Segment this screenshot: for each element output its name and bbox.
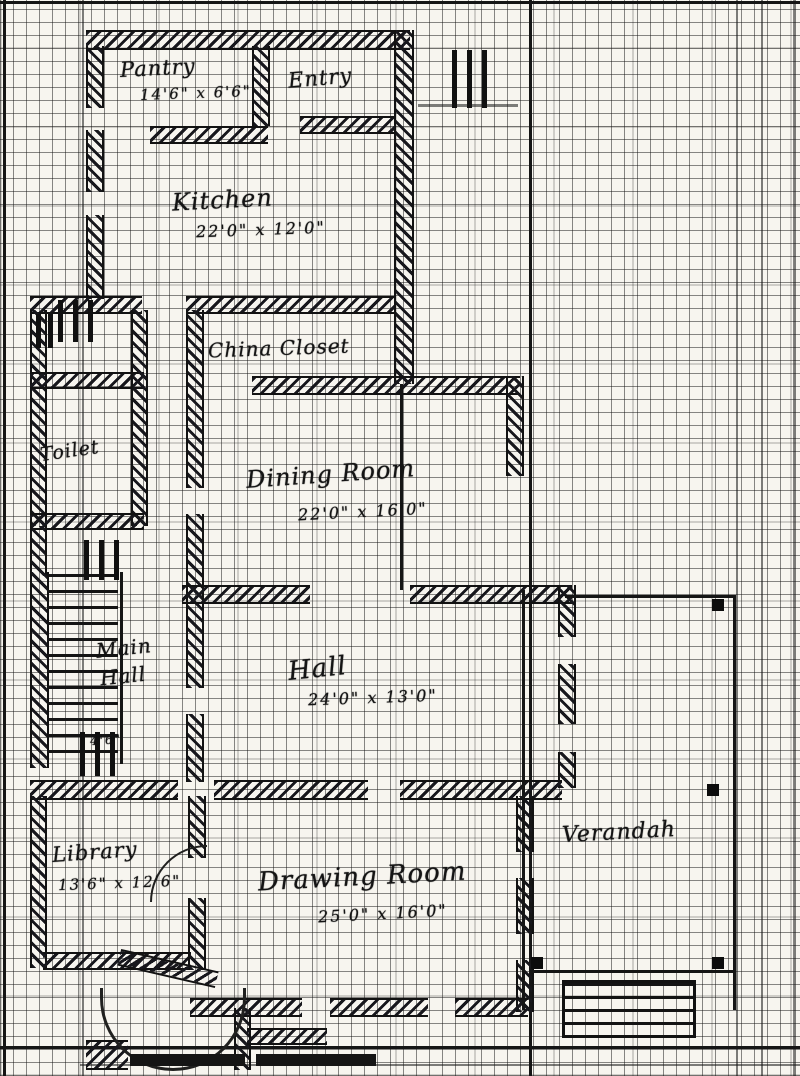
veranda-rail bbox=[530, 970, 736, 973]
wall-segment bbox=[410, 585, 572, 604]
veranda-post bbox=[712, 599, 724, 611]
wall-segment bbox=[516, 796, 534, 852]
room-dims-drawing-room: 25'0" x 16'0" bbox=[318, 901, 449, 927]
wall-segment bbox=[86, 30, 410, 50]
window-bar bbox=[114, 540, 119, 580]
room-dims-pantry: 14'6" x 6'6" bbox=[140, 82, 252, 104]
room-label-dining-room: Dining Room bbox=[245, 454, 416, 494]
room-label-main-hall-line1: Main bbox=[95, 633, 153, 663]
wall-segment bbox=[506, 376, 524, 476]
wall-segment bbox=[455, 998, 528, 1017]
room-label-main-hall-line2: Hall bbox=[99, 662, 147, 691]
wall-segment bbox=[30, 572, 49, 768]
window-bar bbox=[58, 300, 63, 342]
wall-segment bbox=[214, 780, 368, 800]
window-bar bbox=[452, 50, 457, 108]
wall-segment bbox=[558, 664, 576, 724]
window-bar bbox=[73, 300, 78, 342]
veranda-rail bbox=[565, 595, 735, 598]
veranda-post bbox=[707, 784, 719, 796]
scan-line bbox=[794, 0, 796, 1076]
window-bar bbox=[467, 50, 472, 108]
wall-segment bbox=[30, 372, 144, 389]
window-symbol bbox=[36, 314, 53, 348]
wall-segment bbox=[131, 310, 148, 526]
wall-segment bbox=[86, 215, 104, 299]
porch-step bbox=[256, 1054, 376, 1066]
kitchen-wall-edge bbox=[400, 384, 403, 590]
wall-segment bbox=[30, 796, 47, 968]
veranda-post bbox=[531, 957, 543, 969]
wall-segment bbox=[394, 30, 414, 384]
scan-line bbox=[761, 0, 763, 1076]
wall-segment bbox=[186, 714, 204, 782]
bay-wall-segment bbox=[247, 1028, 327, 1045]
wall-segment bbox=[558, 585, 576, 637]
wall-segment bbox=[150, 126, 268, 144]
window-bar bbox=[84, 540, 89, 580]
window-symbol bbox=[58, 300, 93, 342]
scan-line bbox=[0, 1, 800, 4]
window-bar bbox=[36, 314, 41, 348]
room-label-library: Library bbox=[51, 837, 138, 867]
room-dims-kitchen: 22'0" x 12'0" bbox=[196, 218, 326, 242]
porch-line bbox=[418, 104, 518, 107]
window-bar bbox=[88, 300, 93, 342]
wall-segment bbox=[300, 116, 395, 134]
wall-segment bbox=[186, 310, 204, 488]
room-dims-hall: 24'0" x 13'0" bbox=[308, 686, 438, 710]
wall-segment bbox=[30, 780, 178, 800]
wall-segment bbox=[86, 130, 104, 192]
porch-step bbox=[130, 1054, 245, 1066]
room-label-hall: Hall bbox=[287, 651, 349, 687]
window-symbol bbox=[84, 540, 119, 580]
room-label-verandah: Verandah bbox=[561, 817, 676, 848]
room-label-pantry: Pantry bbox=[119, 54, 196, 82]
wall-segment bbox=[86, 46, 104, 108]
wall-segment bbox=[252, 46, 270, 126]
veranda-inner-edge bbox=[522, 590, 525, 1010]
room-label-kitchen: Kitchen bbox=[171, 183, 273, 216]
wall-segment bbox=[30, 513, 144, 530]
floor-plan-canvas: Pantry 14'6" x 6'6" Entry Kitchen 22'0" … bbox=[0, 0, 800, 1076]
wall-segment bbox=[330, 998, 428, 1017]
wall-segment bbox=[188, 898, 206, 970]
stair-width-annotation: 4'6" bbox=[90, 732, 123, 748]
room-dims-dining-room: 22'0" x 16'0" bbox=[298, 499, 429, 525]
wall-segment bbox=[186, 296, 394, 314]
room-label-toilet: Toilet bbox=[39, 436, 101, 466]
room-label-drawing-room: Drawing Room bbox=[257, 857, 467, 898]
window-bar bbox=[482, 50, 487, 108]
room-label-china-closet: China Closet bbox=[208, 334, 350, 363]
veranda-post bbox=[712, 957, 724, 969]
scan-line bbox=[3, 0, 6, 1076]
window-bar bbox=[80, 732, 85, 776]
window-bar bbox=[48, 314, 53, 348]
wall-segment bbox=[400, 780, 562, 800]
wall-segment bbox=[30, 526, 47, 576]
room-label-entry: Entry bbox=[287, 63, 353, 93]
window-symbol bbox=[452, 50, 487, 108]
veranda-rail bbox=[733, 595, 736, 1010]
window-bar bbox=[99, 540, 104, 580]
scan-line bbox=[82, 0, 84, 1076]
wall-segment bbox=[516, 878, 534, 934]
wall-segment bbox=[182, 585, 310, 604]
veranda-steps bbox=[562, 980, 696, 1038]
wall-segment bbox=[252, 376, 520, 395]
scan-line bbox=[736, 0, 738, 1076]
